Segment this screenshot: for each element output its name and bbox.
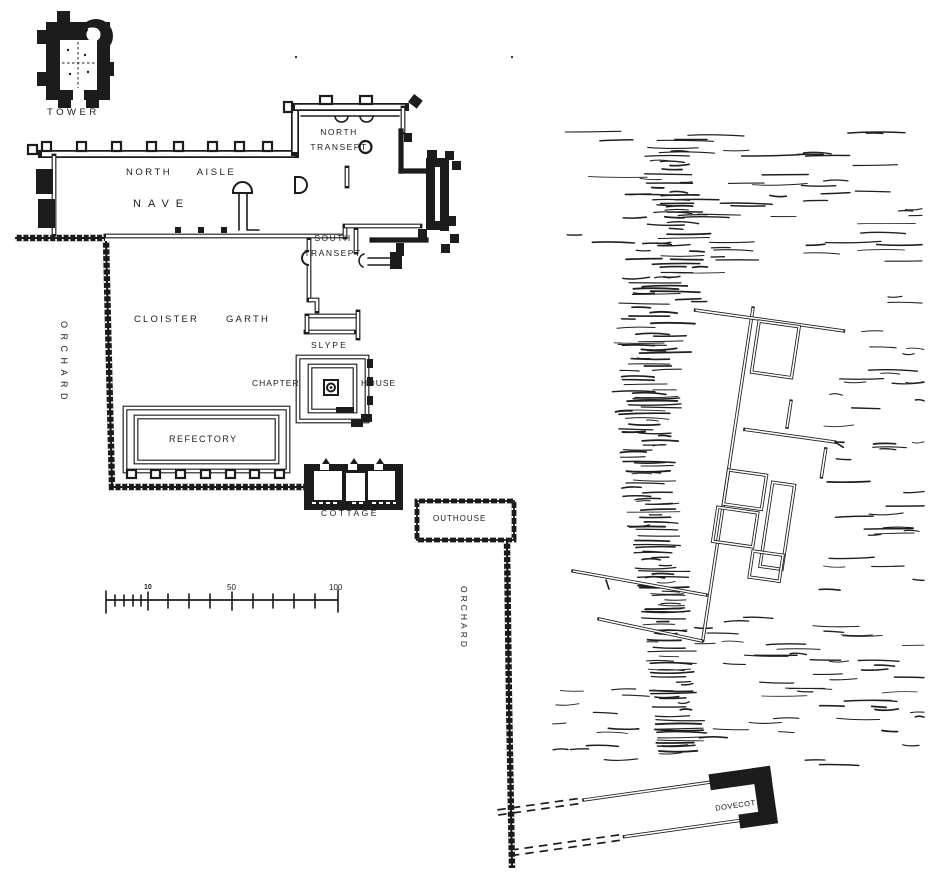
- dovecot-building: DOVECOT: [497, 766, 778, 862]
- label-north-transept-line2: TRANSEPT: [306, 140, 372, 155]
- label-house: HOUSE: [361, 378, 396, 388]
- cottage-plan: [304, 458, 403, 510]
- label-north-aisle: NORTH AISLE: [126, 167, 236, 178]
- label-orchard-east: ORCHARD: [459, 586, 469, 650]
- label-refectory: REFECTORY: [169, 434, 238, 444]
- site-plan-page: DOVECOT: [0, 0, 928, 880]
- scale-label-50: 50: [227, 583, 236, 592]
- label-cloister-garth: CLOISTER GARTH: [134, 314, 270, 325]
- precinct-boundary-walls: [15, 238, 512, 868]
- label-south-transept-line1: SOUTH: [300, 231, 366, 246]
- label-tower: TOWER: [47, 107, 100, 118]
- label-north-transept: NORTH TRANSEPT: [306, 125, 372, 155]
- site-plan-canvas: DOVECOT: [0, 0, 928, 880]
- east-range-plan: [298, 312, 373, 427]
- label-south-transept: SOUTH TRANSEPT: [300, 231, 366, 261]
- label-orchard-west: ORCHARD: [59, 321, 69, 405]
- label-north-transept-line1: NORTH: [306, 125, 372, 140]
- ruin-enclosure-walls: [573, 300, 862, 655]
- terrain-hachures: [553, 131, 924, 765]
- scale-label-100: 100: [329, 583, 342, 592]
- label-dovecot: DOVECOT: [715, 798, 756, 813]
- scale-label-10: 10: [144, 584, 152, 591]
- label-cottage: COTTAGE: [321, 508, 379, 518]
- label-chapter: CHAPTER: [252, 378, 300, 388]
- label-nave: NAVE: [133, 198, 190, 210]
- label-outhouse: OUTHOUSE: [433, 514, 486, 523]
- label-slype: SLYPE: [311, 340, 348, 350]
- label-south-transept-line2: TRANSEPT: [300, 246, 366, 261]
- tower-plan: [37, 11, 114, 108]
- scale-bar: [106, 590, 338, 613]
